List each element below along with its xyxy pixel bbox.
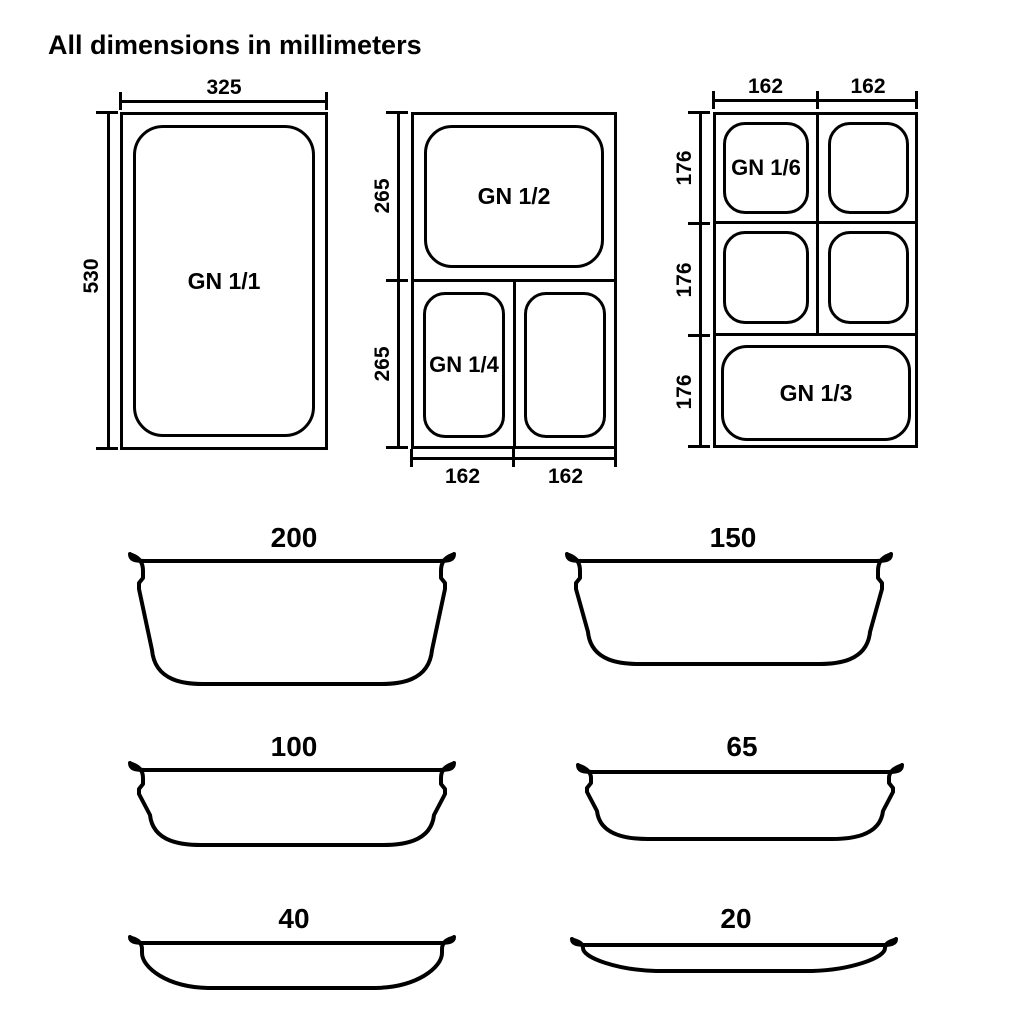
depth-label-20: 20 [568, 903, 904, 935]
gn-1-6-label: GN 1/6 [731, 155, 801, 181]
gn-1-6-pan-unlabeled [828, 231, 909, 324]
dim-label-176-row1: 176 [673, 150, 697, 185]
dim-tick [712, 91, 715, 109]
pan-profile-65 [574, 759, 910, 843]
gn-1-4-pan-unlabeled [524, 292, 606, 438]
frame-divider-vertical [513, 280, 516, 449]
dim-tick [325, 92, 328, 110]
dim-tick [386, 446, 408, 449]
dim-line [120, 100, 328, 103]
dim-tick [688, 445, 710, 448]
gn-1-6-pan-unlabeled [723, 231, 809, 324]
dim-label-176-row2: 176 [673, 262, 697, 297]
gn-1-4-label: GN 1/4 [429, 352, 499, 378]
gn-1-6-pan-unlabeled [828, 122, 909, 214]
dim-tick [688, 334, 710, 337]
dim-tick [386, 279, 408, 282]
dim-tick [816, 91, 819, 109]
gn-1-4-pan: GN 1/4 [423, 292, 505, 438]
dim-tick [119, 92, 122, 110]
dim-tick [688, 111, 710, 114]
pan-profile-200 [126, 548, 462, 688]
dim-tick [96, 447, 118, 450]
dim-label-265-bottom: 265 [371, 346, 395, 381]
pan-profile-150 [563, 548, 899, 668]
gn-pan-dimension-diagram: All dimensions in millimeters 325 530 GN… [0, 0, 1024, 1024]
dim-label-162-left: 162 [411, 465, 514, 489]
dim-label-176-row3: 176 [673, 374, 697, 409]
gn-1-3-pan: GN 1/3 [721, 345, 911, 441]
gn-1-1-label: GN 1/1 [188, 268, 261, 295]
dim-label-162-right: 162 [514, 465, 617, 489]
gn-1-1-pan: GN 1/1 [133, 125, 315, 437]
pan-profile-20 [568, 934, 904, 978]
page-title: All dimensions in millimeters [48, 30, 422, 61]
gn-1-2-label: GN 1/2 [478, 183, 551, 210]
gn-1-2-pan: GN 1/2 [424, 125, 604, 268]
dim-tick [915, 91, 918, 109]
dim-line [107, 112, 110, 450]
dim-label-162-right: 162 [818, 75, 918, 99]
pan-profile-40 [126, 931, 462, 993]
dim-tick [386, 111, 408, 114]
dim-label-265-top: 265 [371, 178, 395, 213]
frame-divider-vertical [816, 112, 819, 336]
dim-label-530: 530 [80, 258, 104, 293]
pan-profile-100 [126, 757, 462, 849]
dim-tick [96, 111, 118, 114]
gn-1-3-label: GN 1/3 [780, 380, 853, 407]
dim-line [699, 112, 702, 448]
gn-1-6-pan: GN 1/6 [723, 122, 809, 214]
dim-tick [688, 222, 710, 225]
dim-label-162-left: 162 [713, 75, 818, 99]
dim-label-325: 325 [120, 76, 328, 100]
